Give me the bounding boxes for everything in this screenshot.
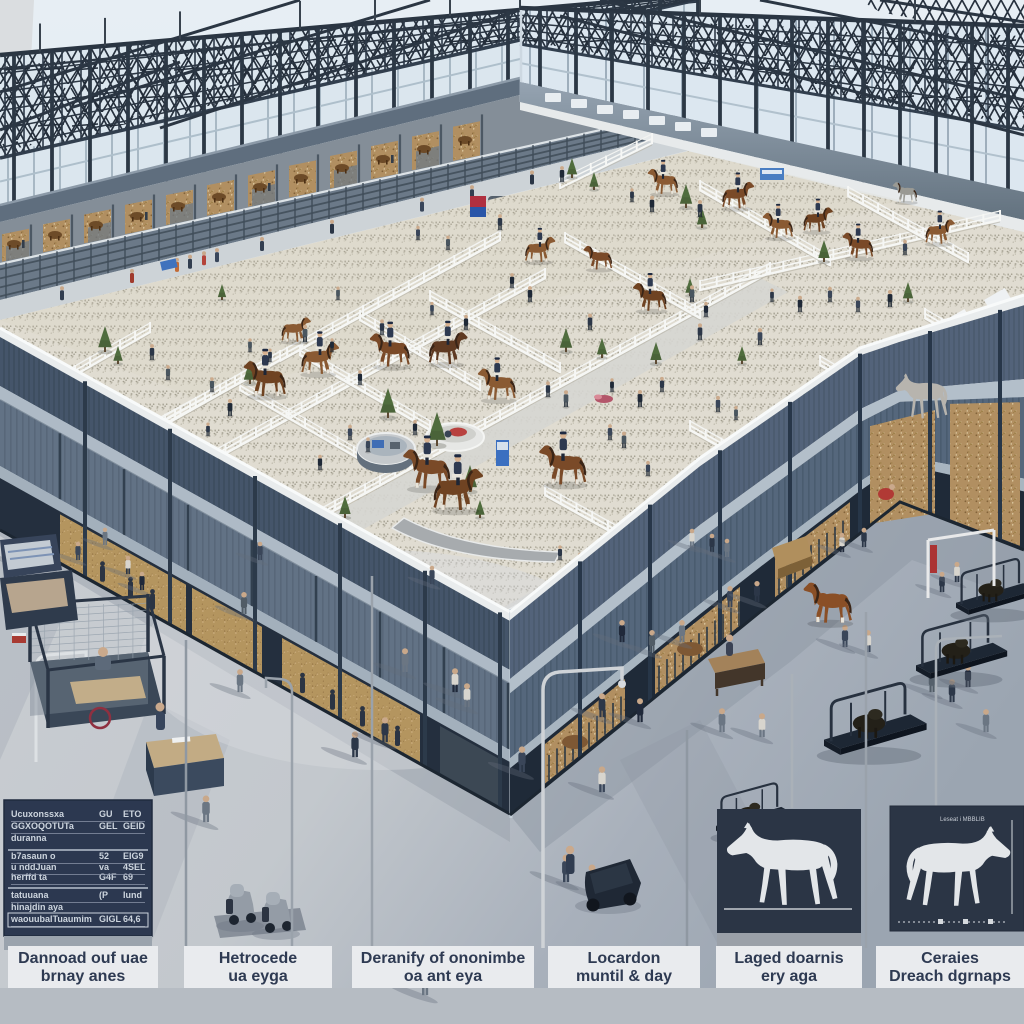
svg-text:waouubalTuaumim: waouubalTuaumim [10,914,92,924]
svg-text:GEL: GEL [99,821,118,831]
svg-text:GIGL: GIGL [99,914,122,924]
svg-text:Dannoad ouf uae: Dannoad ouf uae [18,950,148,967]
svg-text:tatuuana: tatuuana [11,890,49,900]
svg-text:Laged doarnis: Laged doarnis [734,950,843,967]
svg-text:ery aga: ery aga [761,968,817,985]
svg-text:Deranify of ononimbe: Deranify of ononimbe [361,950,526,967]
svg-text:muntil & day: muntil & day [576,968,672,985]
svg-text:69: 69 [123,872,133,882]
svg-text:brnay anes: brnay anes [41,968,126,985]
svg-text:duranna: duranna [11,833,47,843]
svg-text:G4F: G4F [99,872,117,882]
svg-text:GU: GU [99,809,113,819]
svg-text:ETO: ETO [123,809,141,819]
svg-text:Ceraies: Ceraies [921,950,979,967]
svg-text:Dreach dgrnaps: Dreach dgrnaps [889,968,1011,985]
svg-text:(P: (P [99,890,108,900]
svg-text:64,6: 64,6 [123,914,141,924]
svg-text:Leseat i MBBLIB: Leseat i MBBLIB [940,817,985,823]
svg-text:GGXOQOTUTa: GGXOQOTUTa [11,821,75,831]
svg-text:52: 52 [99,851,109,861]
svg-text:b7asaun o: b7asaun o [11,851,56,861]
svg-text:herffd ta: herffd ta [11,872,48,882]
svg-text:GEID: GEID [123,821,146,831]
svg-text:Ucuxonssxa: Ucuxonssxa [11,809,65,819]
svg-text:hinajdin aya: hinajdin aya [11,902,64,912]
svg-text:oa ant eya: oa ant eya [404,968,482,985]
svg-text:Locardon: Locardon [588,950,661,967]
svg-text:EIG9: EIG9 [123,851,144,861]
svg-text:Hetrocede: Hetrocede [219,950,297,967]
svg-text:ua eyga: ua eyga [228,968,288,985]
svg-text:Iund: Iund [123,890,142,900]
